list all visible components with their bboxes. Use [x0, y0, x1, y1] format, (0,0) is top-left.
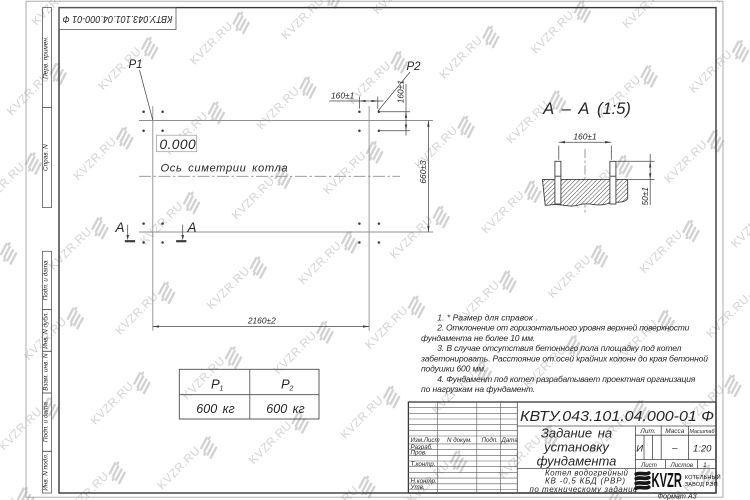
- svg-text:Подп. и дата: Подп. и дата: [41, 402, 49, 442]
- svg-text:P2: P2: [407, 61, 422, 73]
- svg-text:по нагрузкам на фундамент.: по нагрузкам на фундамент.: [421, 384, 535, 394]
- svg-text:1. * Размер для справок .: 1. * Размер для справок .: [437, 312, 537, 322]
- svg-text:КВТУ.043.101.04.000-01 Ф: КВТУ.043.101.04.000-01 Ф: [63, 13, 173, 24]
- svg-text:P1: P1: [129, 59, 143, 71]
- svg-text:Листов: Листов: [670, 462, 694, 469]
- svg-text:50±1: 50±1: [640, 187, 650, 206]
- svg-text:Ось симетрии котла: Ось симетрии котла: [161, 162, 289, 174]
- svg-text:Пров.: Пров.: [411, 450, 427, 457]
- svg-text:Инв. N дубл.: Инв. N дубл.: [41, 312, 49, 349]
- svg-text:фундамента: фундамента: [537, 454, 617, 469]
- svg-text:А: А: [115, 220, 125, 235]
- svg-text:600 кг: 600 кг: [196, 402, 234, 416]
- svg-text:забетонировать. Расстояние от: забетонировать. Расстояние от осей крайн…: [420, 353, 708, 363]
- svg-text:4. Фундамент под котел разраба: 4. Фундамент под котел разрабатывает про…: [437, 374, 695, 384]
- svg-text:1: 1: [220, 386, 224, 393]
- svg-text:Дата: Дата: [501, 437, 519, 444]
- svg-text:КВТУ.043.101.04.000-01 Ф: КВТУ.043.101.04.000-01 Ф: [520, 408, 714, 425]
- svg-text:А: А: [187, 220, 197, 235]
- svg-text:подушки 600 мм.: подушки 600 мм.: [421, 364, 486, 374]
- svg-text:160±1: 160±1: [331, 90, 354, 100]
- svg-text:Утв.: Утв.: [410, 484, 425, 491]
- svg-text:Т.контр.: Т.контр.: [411, 461, 436, 468]
- svg-text:А – А (1:5): А – А (1:5): [542, 100, 631, 118]
- svg-text:Масштаб: Масштаб: [690, 429, 716, 435]
- svg-text:–: –: [671, 443, 678, 454]
- svg-text:Масса: Масса: [665, 428, 685, 435]
- svg-text:Взам. инв. N: Взам. инв. N: [42, 353, 49, 391]
- svg-text:Задание на: Задание на: [541, 426, 612, 441]
- svg-text:Подп. и дата: Подп. и дата: [41, 260, 49, 300]
- svg-text:Инв. N подл.: Инв. N подл.: [41, 453, 49, 490]
- svg-text:KVZR: KVZR: [652, 470, 683, 492]
- svg-text:Лист: Лист: [640, 462, 657, 469]
- svg-text:1: 1: [703, 462, 707, 469]
- svg-text:по техническому задание: по техническому задание: [530, 485, 639, 494]
- svg-text:Справ. N: Справ. N: [42, 144, 49, 171]
- svg-text:ЗАВОД РЭП: ЗАВОД РЭП: [685, 482, 718, 488]
- svg-text:N докум.: N докум.: [447, 437, 472, 444]
- svg-text:Формат А3: Формат А3: [657, 491, 696, 500]
- svg-text:2. Отклонение от горизонтально: 2. Отклонение от горизонтального уровня …: [436, 323, 689, 333]
- svg-text:0.000: 0.000: [160, 137, 197, 152]
- svg-text:И: И: [636, 444, 643, 455]
- svg-text:установку: установку: [543, 440, 610, 455]
- svg-text:600 кг: 600 кг: [266, 402, 304, 416]
- svg-text:160±1: 160±1: [573, 131, 596, 141]
- svg-text:2160±2: 2160±2: [247, 315, 276, 325]
- svg-text:2: 2: [289, 386, 294, 393]
- svg-text:1:20: 1:20: [693, 444, 712, 455]
- svg-text:160±1: 160±1: [396, 80, 406, 103]
- svg-text:Перв. примен.: Перв. примен.: [42, 36, 49, 78]
- svg-text:фундамента не более 10 мм.: фундамента не более 10 мм.: [421, 333, 535, 343]
- svg-text:3. В случае отсутствия бетонно: 3. В случае отсутствия бетонного пола пл…: [437, 343, 681, 353]
- svg-text:КОТЕЛЬНЫЙ: КОТЕЛЬНЫЙ: [685, 473, 721, 481]
- svg-text:Подп.: Подп.: [482, 437, 498, 444]
- svg-text:660±3: 660±3: [418, 160, 428, 184]
- svg-text:Лит.: Лит.: [639, 428, 655, 435]
